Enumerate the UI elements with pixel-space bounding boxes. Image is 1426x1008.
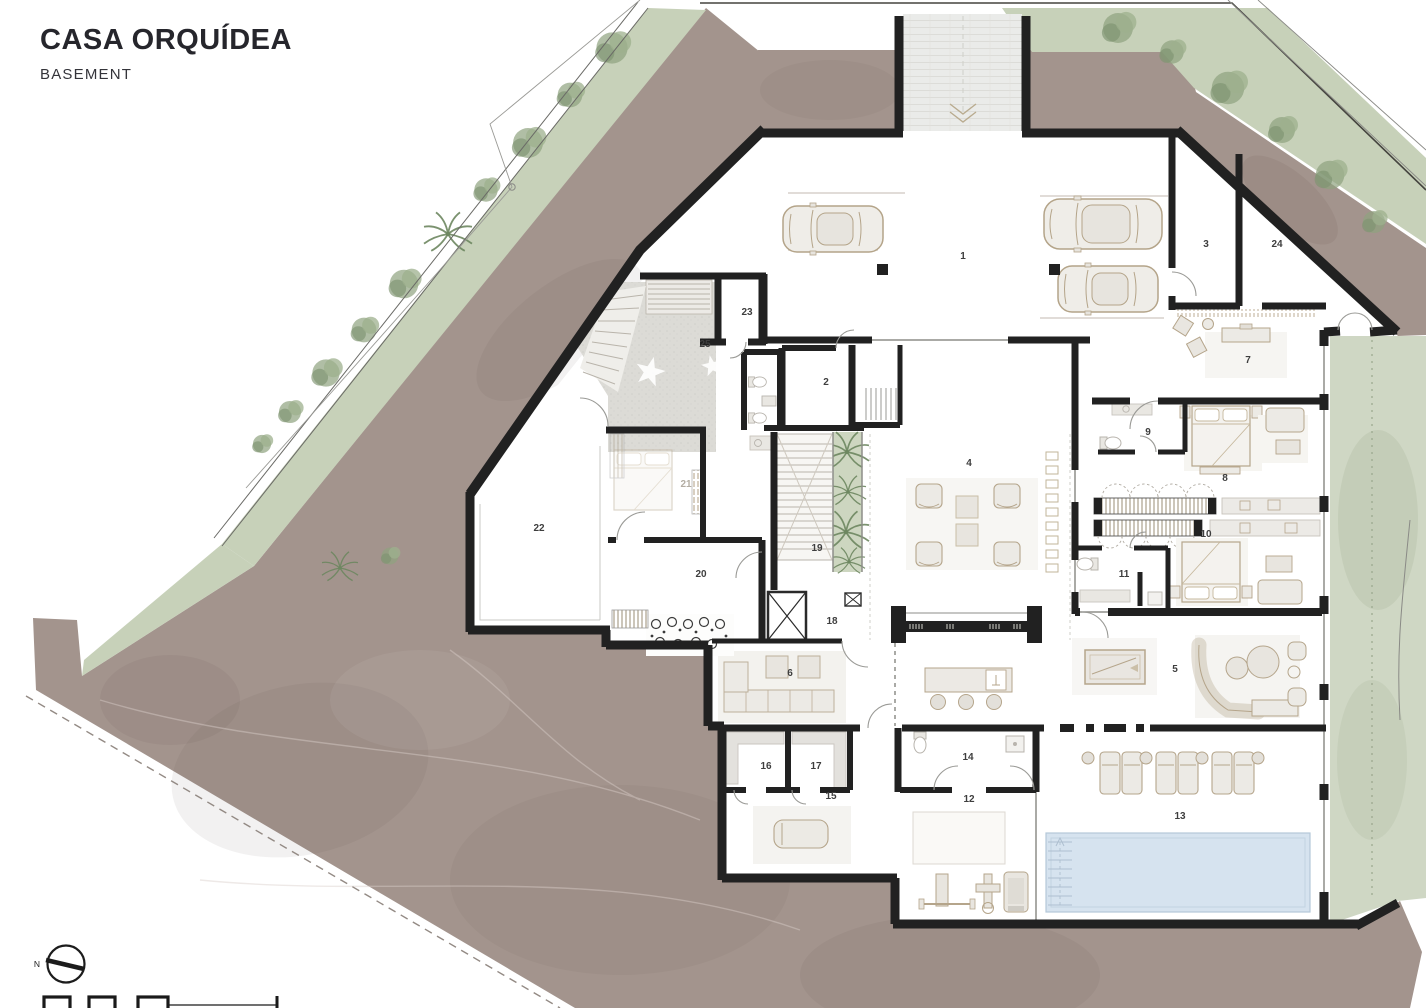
room-label-25: 25 [699, 339, 711, 350]
stair-entry-2 [866, 388, 896, 420]
room-label-10: 10 [1200, 529, 1212, 540]
pool-loungers [1082, 752, 1264, 794]
room-label-8: 8 [1222, 473, 1228, 484]
page-title: CASA ORQUÍDEA [40, 24, 292, 57]
room-label-17: 17 [810, 761, 822, 772]
room-label-24: 24 [1271, 239, 1283, 250]
room-label-3: 3 [1203, 239, 1209, 250]
room-label-13: 13 [1174, 811, 1186, 822]
page-subtitle: BASEMENT [40, 66, 292, 83]
room15-massage [753, 806, 851, 864]
room6-tv-lounge [718, 651, 846, 723]
room-label-19: 19 [811, 543, 823, 554]
room-label-2: 2 [823, 377, 829, 388]
room-label-15: 15 [825, 791, 837, 802]
room-label-18: 18 [826, 616, 838, 627]
stair-garden-top [646, 280, 712, 314]
ornamental-rug [646, 614, 734, 656]
room-label-14: 14 [962, 752, 974, 763]
room-label-7: 7 [1245, 355, 1251, 366]
stair-main-19 [776, 434, 833, 560]
room-label-11: 11 [1119, 569, 1130, 580]
room-label-21: 21 [680, 479, 692, 490]
room-label-4: 4 [966, 458, 972, 469]
room-label-9: 9 [1145, 427, 1151, 438]
room-label-22: 22 [533, 523, 545, 534]
title-block: CASA ORQUÍDEA BASEMENT [40, 24, 292, 83]
room-label-12: 12 [963, 794, 975, 805]
floorplan-drawing: 1 2 3 4 5 6 7 8 9 10 11 12 13 14 15 16 1… [0, 0, 1426, 1008]
scale-bar [44, 996, 277, 1008]
room-label-1: 1 [960, 251, 966, 262]
floorplan-sheet: CASA ORQUÍDEA BASEMENT [0, 0, 1426, 1008]
north-arrow: N [34, 946, 85, 983]
room-label-23: 23 [741, 307, 753, 318]
room-label-5: 5 [1172, 664, 1178, 675]
kitchen-island [925, 668, 1012, 710]
north-label: N [34, 959, 40, 969]
room-label-20: 20 [695, 569, 707, 580]
room-label-16: 16 [760, 761, 772, 772]
pool [1046, 833, 1310, 912]
room-label-6: 6 [787, 668, 793, 679]
